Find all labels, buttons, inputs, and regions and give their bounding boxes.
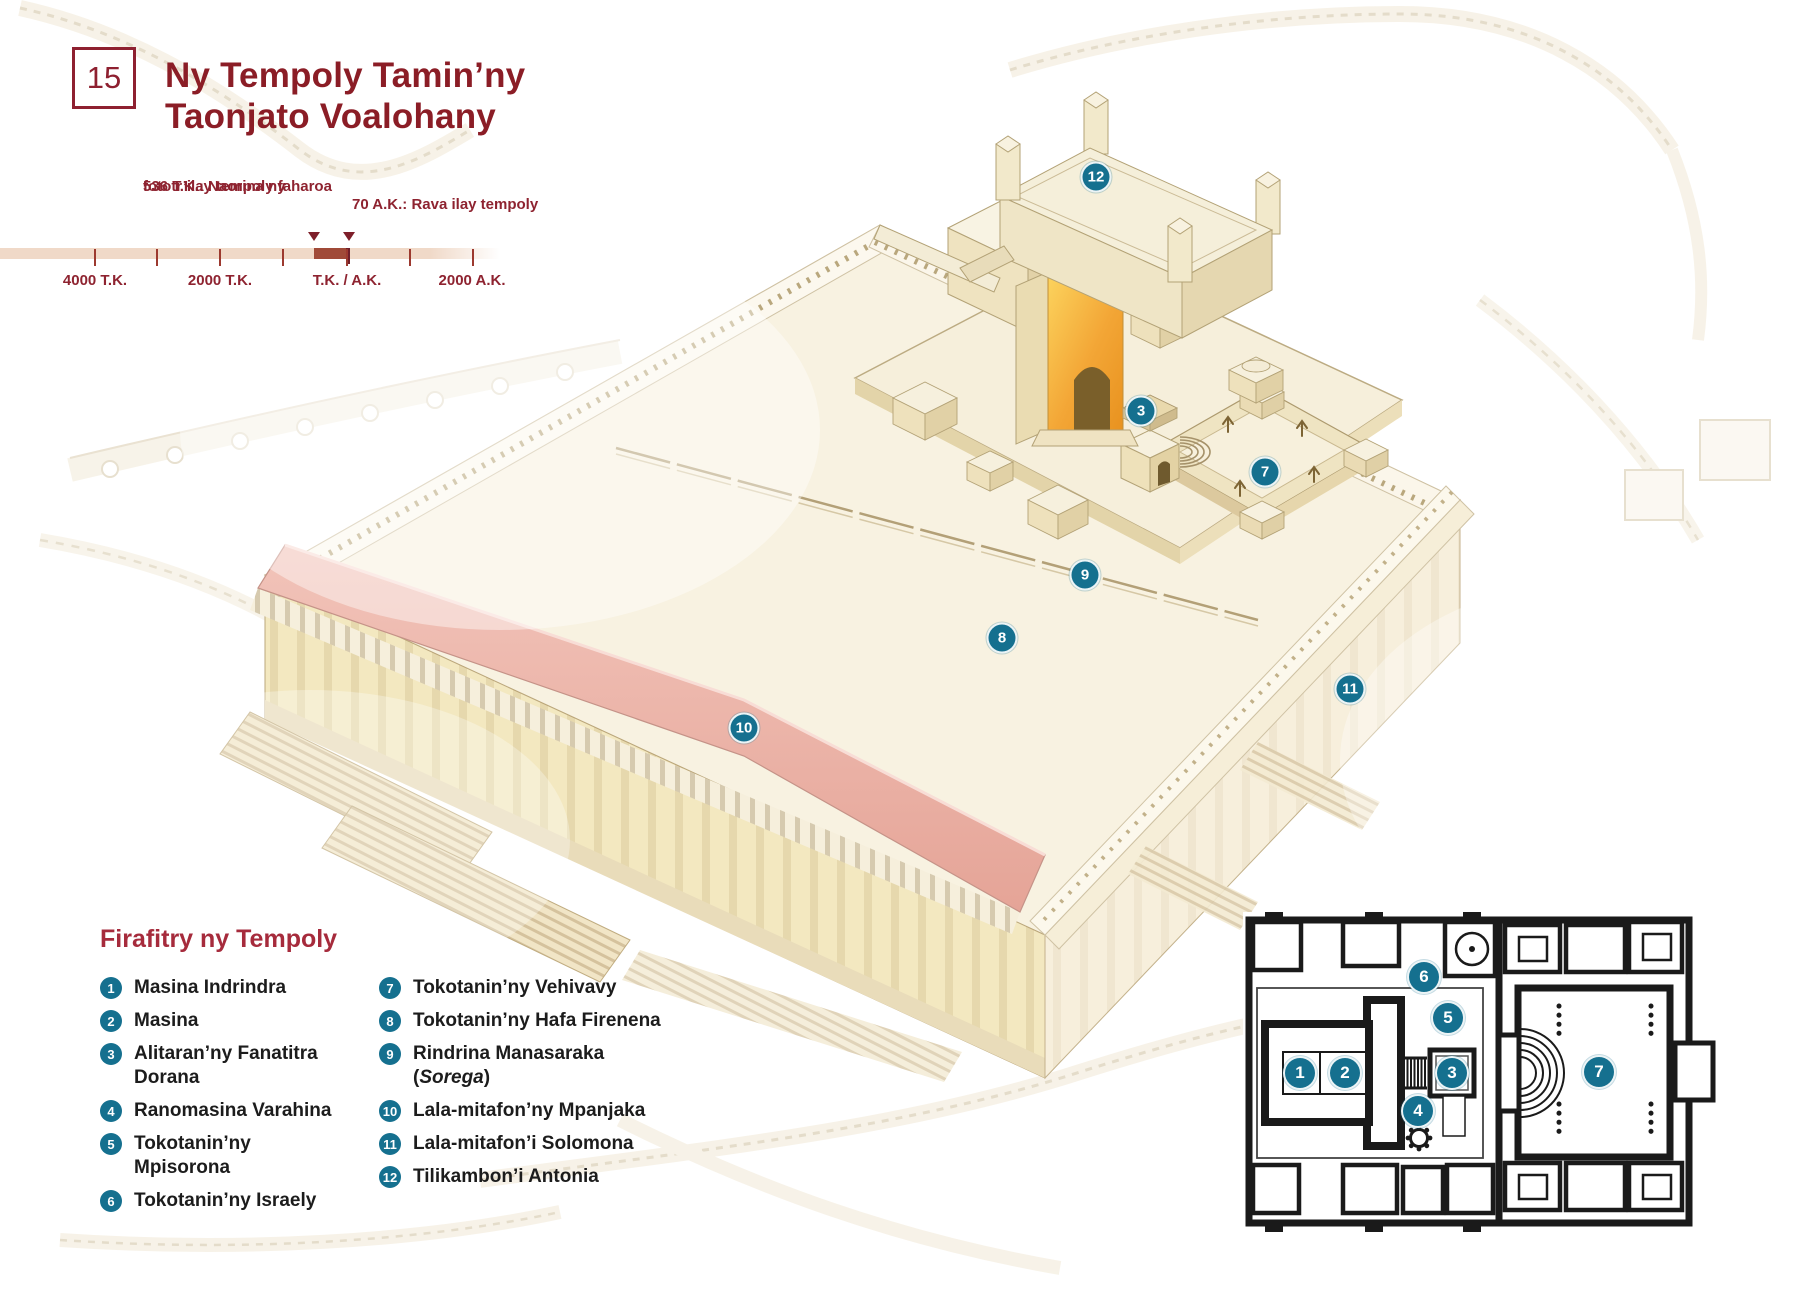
fade-overlays bbox=[50, 230, 1800, 990]
floor-plan-marker: 1 bbox=[1283, 1056, 1317, 1090]
legend-item-label: Alitaran’ny Fanatitra Dorana bbox=[134, 1042, 345, 1090]
legend-item: 9 Rindrina Manasaraka (Sorega) bbox=[379, 1042, 669, 1090]
legend-item-label: Ranomasina Varahina bbox=[134, 1099, 331, 1123]
illustration-marker: 12 bbox=[1081, 162, 1112, 193]
legend-item: 5 Tokotanin’ny Mpisorona bbox=[100, 1132, 345, 1180]
floor-plan-marker: 6 bbox=[1407, 960, 1441, 994]
legend-item-label: Tokotanin’ny Israely bbox=[134, 1189, 316, 1213]
timeline-arrow-icon bbox=[343, 232, 355, 241]
timeline-tick-label: 2000 A.K. bbox=[439, 272, 506, 289]
timeline-tick bbox=[472, 249, 474, 266]
legend-item-label: Lala-mitafon’i Solomona bbox=[413, 1132, 634, 1156]
sanctuary-building bbox=[948, 186, 1138, 446]
floor-plan-marker: 7 bbox=[1582, 1055, 1616, 1089]
antonia-fortress bbox=[874, 92, 1280, 338]
legend-panel: Firafitry ny Tempoly 1 Masina Indrindra … bbox=[100, 925, 700, 1213]
legend-item-number: 11 bbox=[379, 1133, 401, 1155]
floor-plan-marker: 5 bbox=[1431, 1001, 1465, 1035]
temple-floor-plan: 1 2 3 4 5 6 7 bbox=[1243, 912, 1718, 1242]
timeline-tick bbox=[94, 249, 96, 266]
legend-item-number: 12 bbox=[379, 1166, 401, 1188]
legend-item-number: 8 bbox=[379, 1010, 401, 1032]
legend-item-label: Masina Indrindra bbox=[134, 976, 286, 1000]
legend-item-label: Tokotanin’ny Vehivavy bbox=[413, 976, 616, 1000]
legend-item-number: 4 bbox=[100, 1100, 122, 1122]
timeline: 536 T.K.: Naorina ny fototr’ilay tempoly… bbox=[0, 170, 560, 300]
timeline-tick bbox=[346, 249, 348, 266]
legend-item-number: 3 bbox=[100, 1043, 122, 1065]
legend-item: 11 Lala-mitafon’i Solomona bbox=[379, 1132, 669, 1156]
legend-item-number: 6 bbox=[100, 1190, 122, 1212]
timeline-tick bbox=[219, 249, 221, 266]
floor-plan-marker: 3 bbox=[1435, 1056, 1469, 1090]
illustration-marker: 10 bbox=[729, 713, 760, 744]
legend-title: Firafitry ny Tempoly bbox=[100, 925, 700, 954]
illustration-marker: 9 bbox=[1070, 560, 1101, 591]
legend-item: 3 Alitaran’ny Fanatitra Dorana bbox=[100, 1042, 345, 1090]
infographic-page: 15 Ny Tempoly Tamin’ny Taonjato Voalohan… bbox=[0, 0, 1800, 1300]
legend-item-number: 2 bbox=[100, 1010, 122, 1032]
legend-item-label: Tilikambon’i Antonia bbox=[413, 1165, 599, 1189]
page-title-line1: Ny Tempoly Tamin’ny bbox=[165, 55, 525, 96]
illustration-marker: 3 bbox=[1126, 396, 1157, 427]
illustration-marker: 7 bbox=[1250, 457, 1281, 488]
legend-item: 6 Tokotanin’ny Israely bbox=[100, 1189, 345, 1213]
legend-item: 10 Lala-mitafon’ny Mpanjaka bbox=[379, 1099, 669, 1123]
legend-item-number: 5 bbox=[100, 1133, 122, 1155]
timeline-arrow-icon bbox=[308, 232, 320, 241]
legend-item: 1 Masina Indrindra bbox=[100, 976, 345, 1000]
legend-item-label: Lala-mitafon’ny Mpanjaka bbox=[413, 1099, 645, 1123]
legend-item-number: 7 bbox=[379, 977, 401, 999]
timeline-tick-label: 4000 T.K. bbox=[63, 272, 127, 289]
soreg-wall bbox=[616, 448, 1258, 626]
illustration-marker: 11 bbox=[1335, 674, 1366, 705]
timeline-event-70: 70 A.K.: Rava ilay tempoly bbox=[352, 196, 562, 213]
timeline-tick-label: 2000 T.K. bbox=[188, 272, 252, 289]
legend-item: 2 Masina bbox=[100, 1009, 345, 1033]
legend-item: 4 Ranomasina Varahina bbox=[100, 1099, 345, 1123]
legend-item: 12 Tilikambon’i Antonia bbox=[379, 1165, 669, 1189]
legend-item-label: Tokotanin’ny Hafa Firenena bbox=[413, 1009, 661, 1033]
inner-court-structures bbox=[893, 298, 1283, 539]
floor-plan-marker: 4 bbox=[1401, 1094, 1435, 1128]
timeline-highlight-segment bbox=[314, 248, 349, 259]
legend-item-number: 9 bbox=[379, 1043, 401, 1065]
floor-plan-marker: 2 bbox=[1328, 1056, 1362, 1090]
legend-item-label: Tokotanin’ny Mpisorona bbox=[134, 1132, 345, 1180]
legend-item-number: 10 bbox=[379, 1100, 401, 1122]
timeline-tick bbox=[282, 249, 284, 266]
legend-item-number: 1 bbox=[100, 977, 122, 999]
legend-item: 8 Tokotanin’ny Hafa Firenena bbox=[379, 1009, 669, 1033]
timeline-bar bbox=[0, 248, 500, 259]
page-title-line2: Taonjato Voalohany bbox=[165, 96, 525, 137]
legend-item-label: Masina bbox=[134, 1009, 198, 1033]
illustration-marker: 8 bbox=[987, 623, 1018, 654]
legend-item-label: Rindrina Manasaraka (Sorega) bbox=[413, 1042, 669, 1090]
timeline-tick bbox=[156, 249, 158, 266]
timeline-tick-label: T.K. / A.K. bbox=[313, 272, 382, 289]
legend-item: 7 Tokotanin’ny Vehivavy bbox=[379, 976, 669, 1000]
page-title: Ny Tempoly Tamin’ny Taonjato Voalohany bbox=[165, 55, 525, 137]
page-number-badge: 15 bbox=[72, 47, 136, 109]
timeline-tick bbox=[409, 249, 411, 266]
